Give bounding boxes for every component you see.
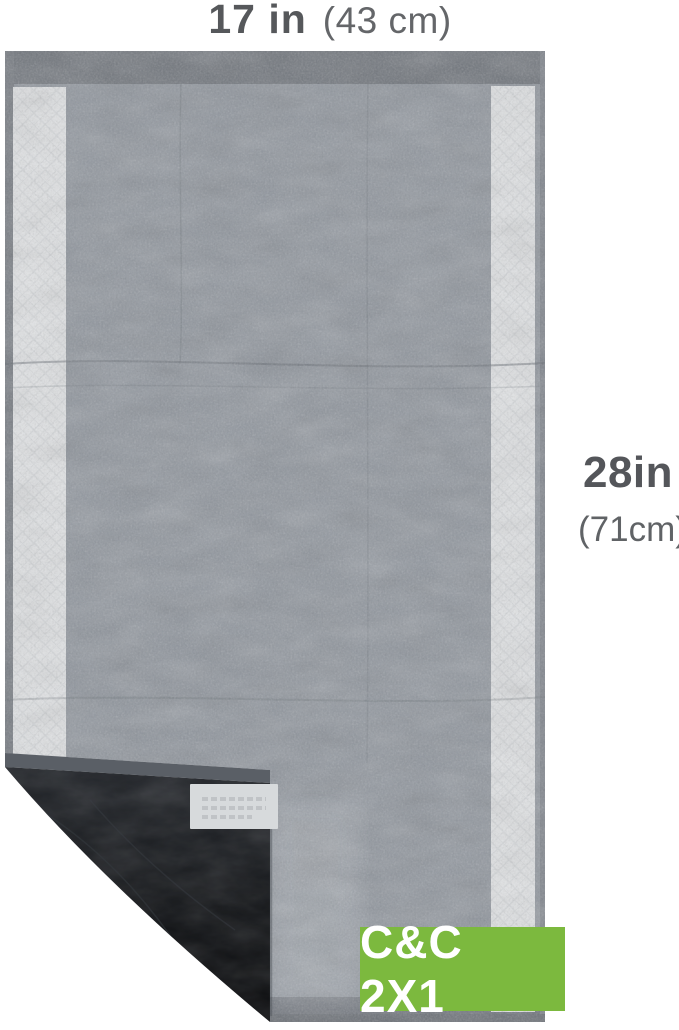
width-imperial: 17 in xyxy=(208,0,306,43)
size-badge: C&C 2X1 xyxy=(360,927,565,1011)
height-metric: (71cm) xyxy=(578,510,678,550)
size-badge-label: C&C 2X1 xyxy=(360,915,565,1023)
height-dimension-label: 28in (71cm) xyxy=(578,448,678,550)
fleece-texture-mottle xyxy=(5,51,545,1022)
width-metric: (43 cm) xyxy=(323,0,452,42)
height-imperial: 28in xyxy=(578,448,678,498)
width-dimension-label: 17 in (43 cm) xyxy=(130,0,530,43)
product-photo: 17 in (43 cm) 28in (71cm) C&C 2X1 xyxy=(0,0,679,1030)
